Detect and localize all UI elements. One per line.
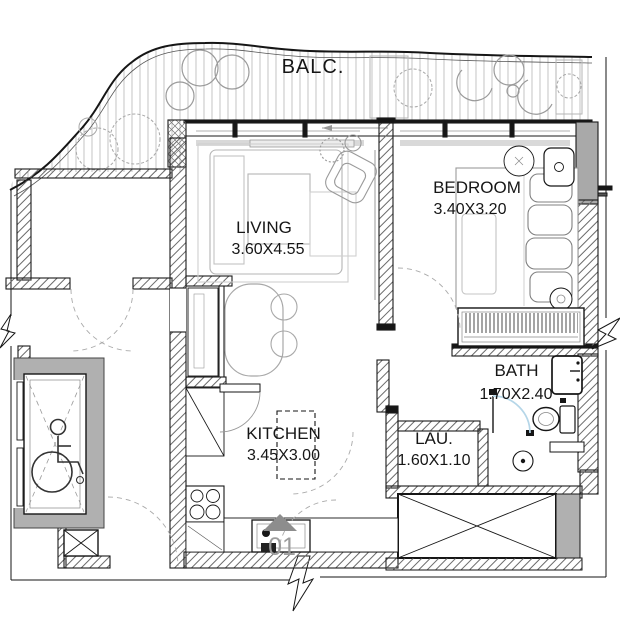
living-dimensions: 3.60X4.55 xyxy=(204,242,332,259)
living-label: LIVING xyxy=(204,219,324,237)
kitchen-fixtures xyxy=(186,288,398,552)
unit-number-label: 01 xyxy=(258,534,306,560)
bath-dimensions: 1.70X2.40 xyxy=(470,387,562,404)
laundry-dimensions: 1.60X1.10 xyxy=(388,453,480,470)
closet xyxy=(458,308,584,346)
kitchen-label: KITCHEN xyxy=(226,425,341,443)
floor-plan-drawing xyxy=(0,0,620,620)
bedroom-dimensions: 3.40X3.20 xyxy=(406,202,534,219)
armchair xyxy=(322,148,380,207)
bath-label: BATH xyxy=(479,362,554,380)
dining-table xyxy=(225,284,297,376)
stove-icon xyxy=(186,486,224,522)
toilet-icon xyxy=(533,406,575,433)
bedroom-label: BEDROOM xyxy=(413,179,541,197)
floor-plan-canvas: BALC. LIVING 3.60X4.55 BEDROOM 3.40X3.20… xyxy=(0,0,620,620)
floor-drain-icon xyxy=(513,451,533,471)
laundry-label: LAU. xyxy=(394,430,474,448)
elevator xyxy=(12,358,104,528)
balcony-label: BALC. xyxy=(278,57,348,78)
slide-arrow-icon xyxy=(322,125,332,131)
kitchen-dimensions: 3.45X3.00 xyxy=(226,448,341,465)
break-arrow-icon xyxy=(0,314,15,348)
bedroom-furniture xyxy=(400,140,584,346)
